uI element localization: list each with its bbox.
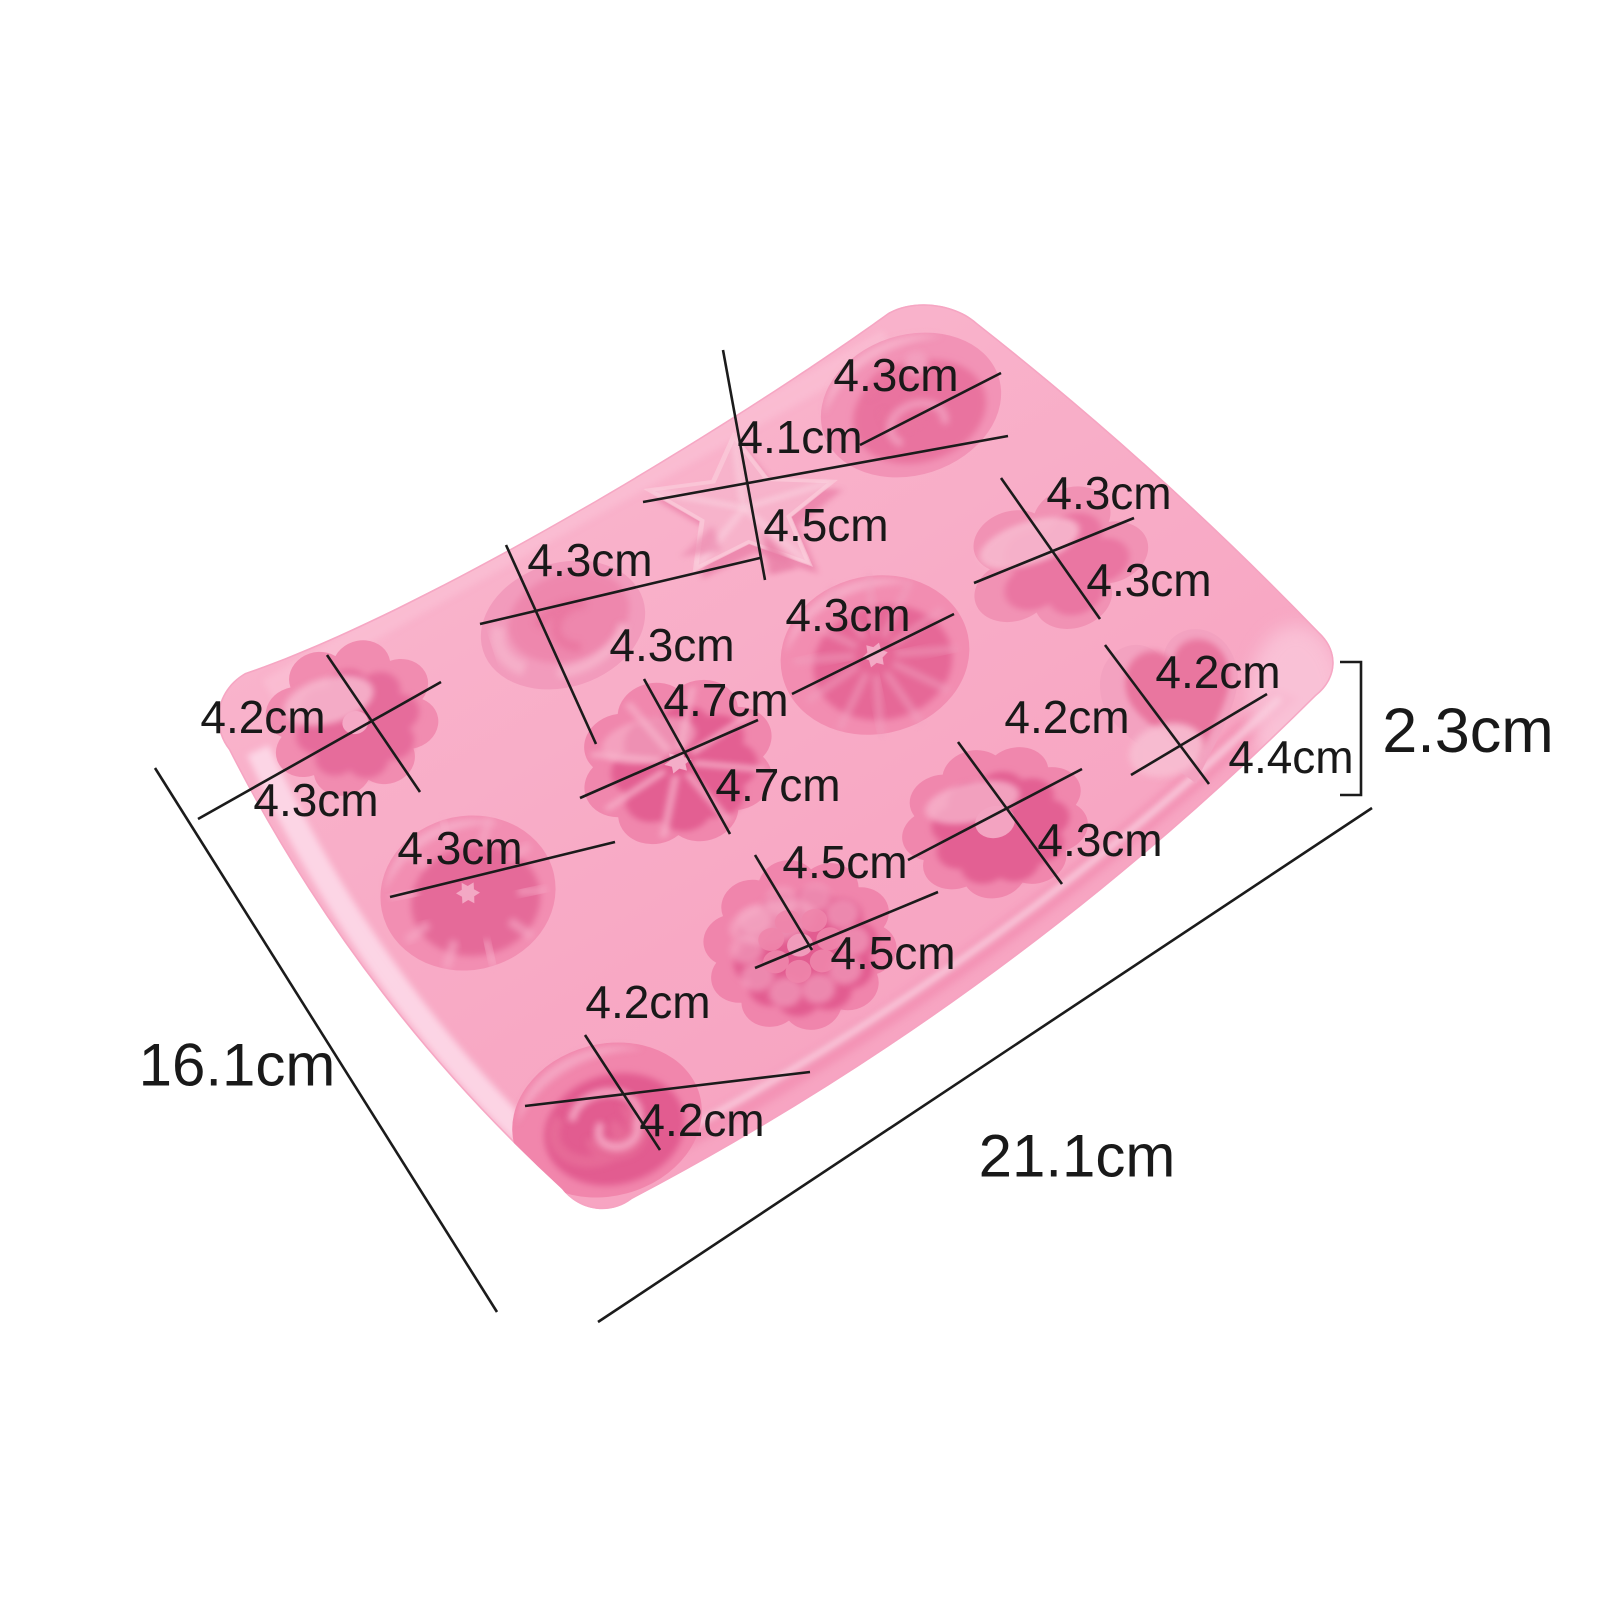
svg-text:4.5cm: 4.5cm [830,927,955,979]
svg-text:4.5cm: 4.5cm [763,499,888,551]
svg-text:21.1cm: 21.1cm [979,1123,1176,1190]
svg-text:4.3cm: 4.3cm [609,619,734,671]
svg-text:4.3cm: 4.3cm [253,774,378,826]
svg-text:4.5cm: 4.5cm [782,836,907,888]
svg-text:4.4cm: 4.4cm [1228,731,1353,783]
svg-text:4.3cm: 4.3cm [1037,814,1162,866]
svg-text:4.2cm: 4.2cm [639,1094,764,1146]
svg-text:4.7cm: 4.7cm [663,674,788,726]
svg-text:4.3cm: 4.3cm [527,534,652,586]
svg-text:4.2cm: 4.2cm [200,691,325,743]
svg-text:16.1cm: 16.1cm [139,1032,336,1099]
svg-text:4.1cm: 4.1cm [737,411,862,463]
svg-text:4.3cm: 4.3cm [1086,554,1211,606]
svg-text:4.2cm: 4.2cm [585,976,710,1028]
svg-text:4.2cm: 4.2cm [1155,646,1280,698]
svg-text:2.3cm: 2.3cm [1382,696,1554,766]
svg-text:4.3cm: 4.3cm [785,589,910,641]
svg-text:4.3cm: 4.3cm [397,822,522,874]
svg-text:4.3cm: 4.3cm [1046,467,1171,519]
svg-text:4.2cm: 4.2cm [1004,691,1129,743]
svg-text:4.3cm: 4.3cm [833,349,958,401]
svg-text:4.7cm: 4.7cm [715,759,840,811]
